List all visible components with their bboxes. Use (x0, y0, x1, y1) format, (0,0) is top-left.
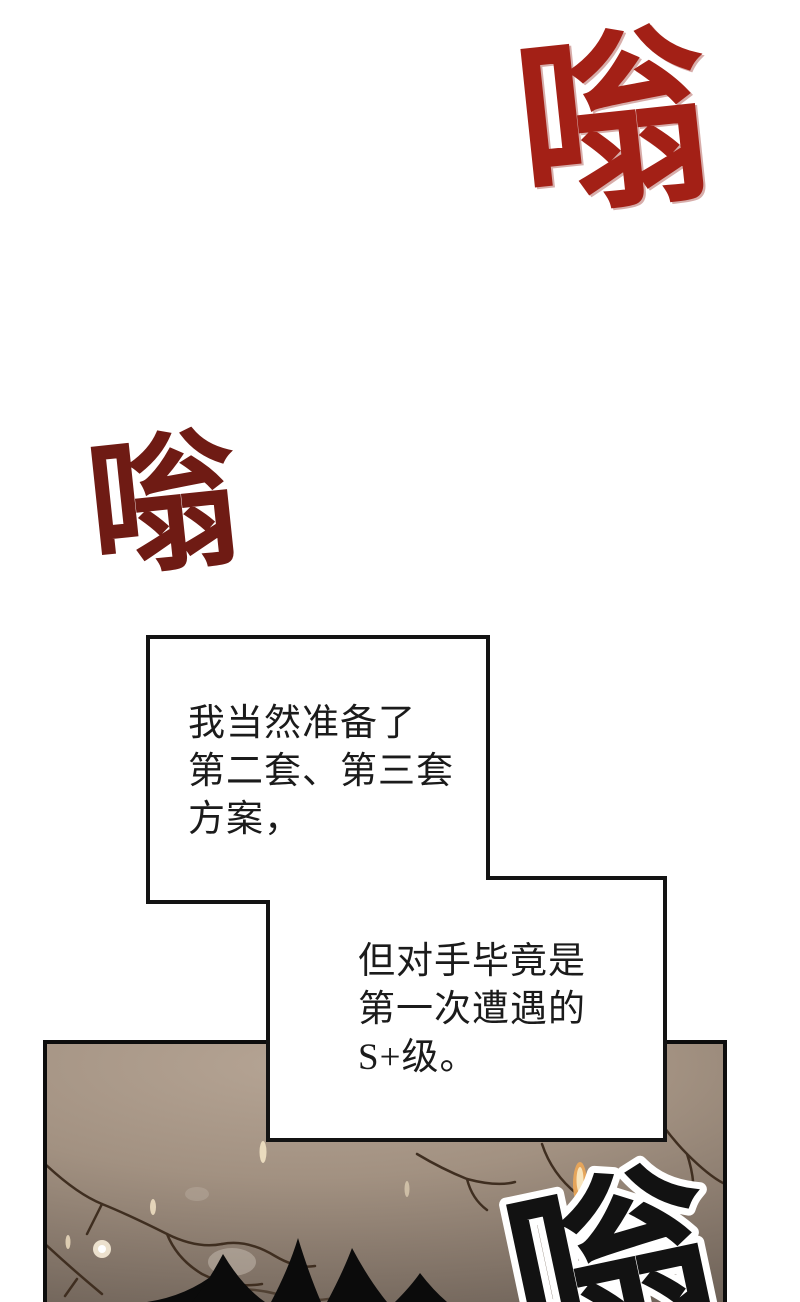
dialogue-line: 第一次遭遇的 (358, 986, 586, 1034)
dialogue-line: 方案， (188, 796, 454, 844)
hair-silhouette (147, 1238, 447, 1302)
comic-page: 嗡 嗡 (0, 0, 800, 1302)
dialogue-line: 但对手毕竟是 (358, 938, 586, 986)
dialogue-text-second: 但对手毕竟是 第一次遭遇的 S+级。 (358, 938, 586, 1082)
dialogue-line: S+级。 (358, 1034, 586, 1082)
scene-panel-art: 嗡 (47, 1044, 723, 1302)
dialogue-line: 我当然准备了 (188, 700, 454, 748)
sfx-weng-dark: 嗡 (489, 1140, 723, 1302)
sfx-weng-small: 嗡 (81, 423, 246, 588)
dialogue-line: 第二套、第三套 (188, 748, 454, 796)
sfx-weng-large: 嗡 (507, 18, 718, 229)
dialogue-text-first: 我当然准备了 第二套、第三套 方案， (188, 700, 454, 844)
